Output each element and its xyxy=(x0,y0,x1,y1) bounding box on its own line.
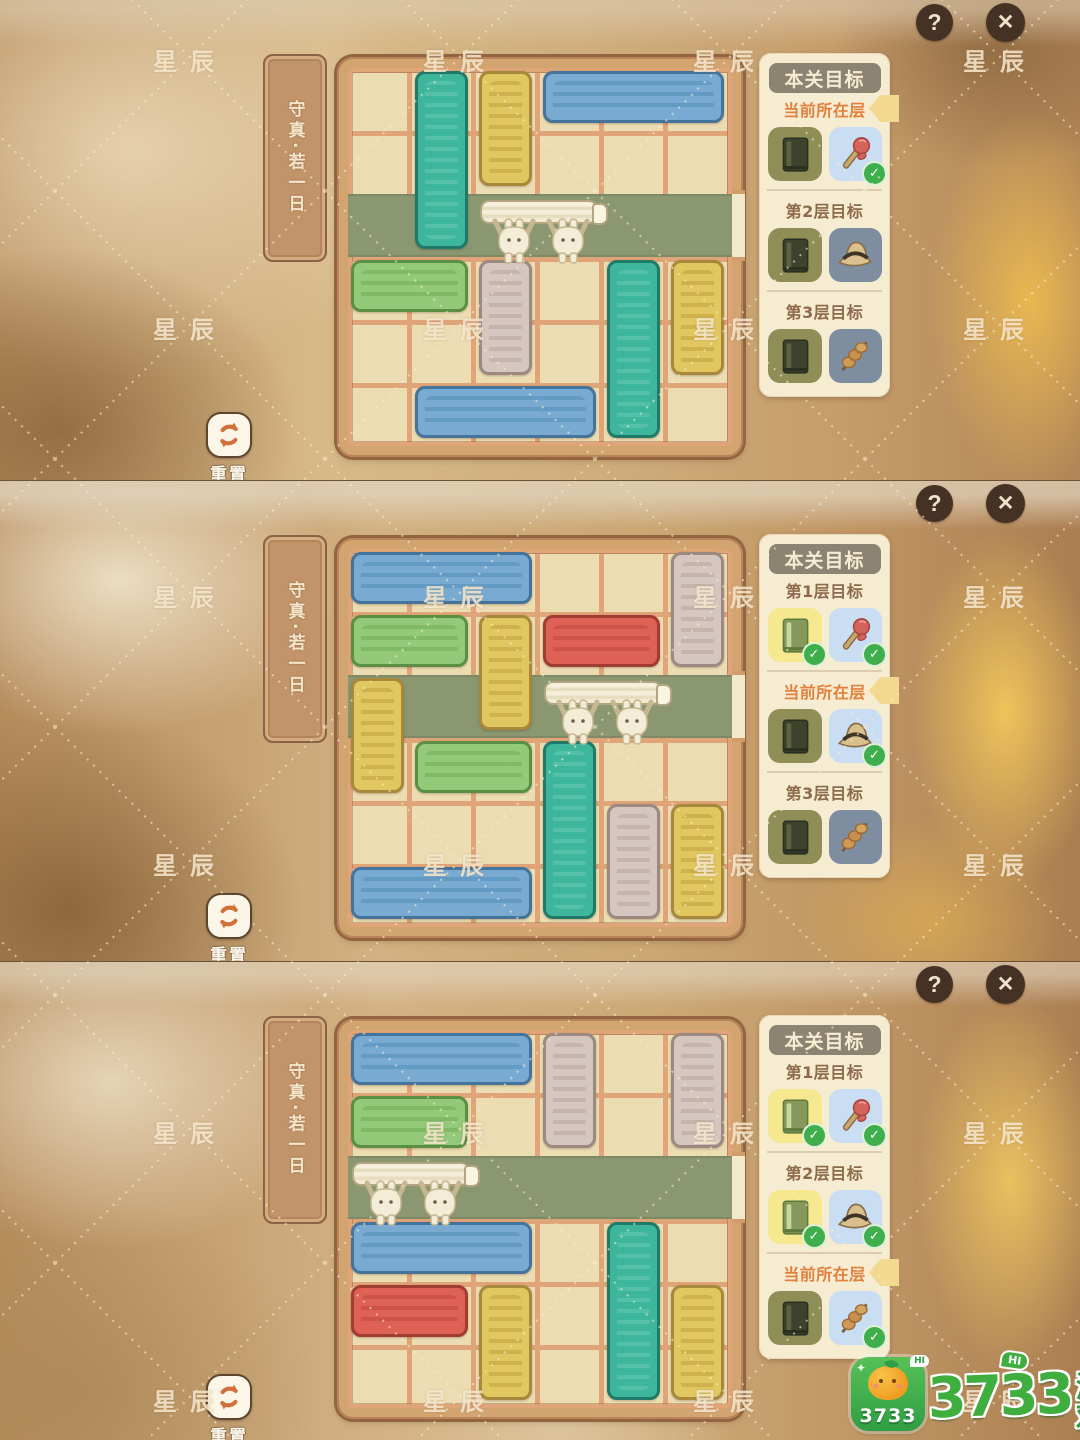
puzzle-block-red[interactable] xyxy=(351,1285,468,1337)
goal-rows: 第1层目标当前所在层第3层目标 xyxy=(767,578,882,864)
bookmark-tab-icon xyxy=(869,1259,899,1286)
goal-panel: 本关目标 第1层目标当前所在层第3层目标 xyxy=(759,534,890,878)
goal-section: 当前所在层 xyxy=(767,1252,882,1345)
book-icon xyxy=(774,715,816,757)
layer-goal-label: 第2层目标 xyxy=(786,1160,864,1184)
puzzle-block-pink[interactable] xyxy=(671,552,724,667)
layer-goal-label: 第3层目标 xyxy=(786,780,864,804)
goal-panel: 本关目标 当前所在层第2层目标第3层目标 xyxy=(759,53,890,397)
wordmark-number: 3733 xyxy=(927,1364,1074,1440)
puzzle-block-yellow[interactable] xyxy=(671,260,724,375)
rabbit-icon xyxy=(608,699,656,745)
board-floor xyxy=(348,549,732,927)
goal-rows: 当前所在层第2层目标第3层目标 xyxy=(767,97,882,383)
refresh-icon xyxy=(214,419,244,451)
goal-panel: 本关目标 第1层目标第2层目标当前所在层 xyxy=(759,1015,890,1359)
goal-section: 第1层目标 xyxy=(767,578,882,662)
close-button[interactable]: ✕ xyxy=(986,965,1025,1004)
goal-panel-header: 本关目标 xyxy=(769,63,881,93)
wordmark-domain: .com xyxy=(1076,1432,1080,1440)
goal-section: 第2层目标 xyxy=(767,1151,882,1244)
3733-app-icon[interactable]: ✦ HI 3733 xyxy=(851,1357,925,1431)
reset-label: 重置 xyxy=(198,941,260,961)
rabbit xyxy=(416,1180,464,1224)
puzzle-block-blue[interactable] xyxy=(351,867,532,919)
leaf-icon xyxy=(884,1358,899,1370)
goal-section: 第3层目标 xyxy=(767,771,882,864)
check-badge-icon xyxy=(802,1123,827,1148)
puzzle-block-teal[interactable] xyxy=(607,260,660,438)
book-icon xyxy=(774,1297,816,1339)
check-badge-icon xyxy=(862,1325,887,1350)
puzzle-block-teal[interactable] xyxy=(415,71,468,249)
layer-goal-label: 第2层目标 xyxy=(786,198,864,222)
puzzle-block-blue[interactable] xyxy=(351,552,532,604)
board-floor xyxy=(348,68,732,446)
check-badge-icon xyxy=(862,642,887,667)
rabbit xyxy=(544,218,592,262)
screenshot-stack: ? ✕ 守真·若一日 本关目标 当前所在层第2层目标第3层目标 重置 ? ✕ 守… xyxy=(0,0,1080,1440)
app-icon-label: 3733 xyxy=(851,1405,925,1427)
reset-button[interactable] xyxy=(206,412,252,458)
help-button[interactable]: ? xyxy=(916,966,953,1003)
rabbit xyxy=(490,218,538,262)
goal-section: 当前所在层 xyxy=(767,670,882,763)
book-goal-tile xyxy=(768,608,822,662)
goal-section: 第2层目标 xyxy=(767,189,882,282)
check-badge-icon xyxy=(862,1123,887,1148)
puzzle-block-teal[interactable] xyxy=(543,741,596,919)
skewer-goal-tile xyxy=(829,329,883,383)
check-badge-icon xyxy=(862,743,887,768)
rabbit-icon xyxy=(416,1180,464,1226)
bookmark-tab-icon xyxy=(869,677,899,704)
reset-button[interactable] xyxy=(206,893,252,939)
layer-goal-label: 第1层目标 xyxy=(786,1059,864,1083)
level-banner: 守真·若一日 xyxy=(263,535,327,743)
rabbit xyxy=(362,1180,410,1224)
help-button[interactable]: ? xyxy=(916,485,953,522)
goal-rows: 第1层目标第2层目标当前所在层 xyxy=(767,1059,882,1345)
rabbit-icon xyxy=(544,218,592,264)
book-goal-tile xyxy=(768,1291,822,1345)
book-icon xyxy=(774,335,816,377)
candy-hammer-goal-tile xyxy=(829,127,883,181)
layer-goal-label: 第1层目标 xyxy=(786,578,864,602)
puzzle-block-blue[interactable] xyxy=(351,1033,532,1085)
exit-gap xyxy=(732,1152,745,1223)
level-title: 守真·若一日 xyxy=(283,581,308,696)
exit-gap xyxy=(732,671,745,742)
puzzle-block-pink[interactable] xyxy=(671,1033,724,1148)
book-icon xyxy=(774,133,816,175)
reset-label: 重置 xyxy=(198,1422,260,1440)
hat-goal-tile xyxy=(829,1190,883,1244)
check-badge-icon xyxy=(862,161,887,186)
reset-control: 重置 xyxy=(198,1374,260,1440)
book-goal-tile xyxy=(768,127,822,181)
rabbit-icon xyxy=(362,1180,410,1226)
book-icon xyxy=(774,234,816,276)
puzzle-block-pink[interactable] xyxy=(607,804,660,919)
current-layer-label: 当前所在层 xyxy=(783,1261,866,1285)
skewer-icon xyxy=(834,816,876,858)
puzzle-block-red[interactable] xyxy=(543,615,660,667)
puzzle-block-yellow[interactable] xyxy=(351,678,404,793)
puzzle-screen-2: ? ✕ 守真·若一日 本关目标 第1层目标当前所在层第3层目标 重置 xyxy=(0,480,1080,961)
wordmark-suffix: 游戏 xyxy=(1076,1372,1080,1432)
hat-icon xyxy=(834,234,876,276)
reset-label: 重置 xyxy=(198,460,260,480)
puzzle-block-green[interactable] xyxy=(351,260,468,312)
bookmark-tab-icon xyxy=(869,95,899,122)
puzzle-board xyxy=(337,57,743,457)
candy-hammer-goal-tile xyxy=(829,608,883,662)
puzzle-block-pink[interactable] xyxy=(543,1033,596,1148)
orange-mascot-icon xyxy=(868,1366,908,1400)
puzzle-block-yellow[interactable] xyxy=(671,804,724,919)
skewer-goal-tile xyxy=(829,810,883,864)
sparkle-icon: ✦ xyxy=(856,1361,866,1375)
goal-section: 第3层目标 xyxy=(767,290,882,383)
candy-hammer-goal-tile xyxy=(829,1089,883,1143)
level-banner: 守真·若一日 xyxy=(263,1016,327,1224)
book-goal-tile xyxy=(768,228,822,282)
puzzle-block-green[interactable] xyxy=(351,615,468,667)
rabbit xyxy=(554,699,602,743)
rabbit xyxy=(608,699,656,743)
book-goal-tile xyxy=(768,329,822,383)
level-title: 守真·若一日 xyxy=(283,1062,308,1177)
puzzle-screen-1: ? ✕ 守真·若一日 本关目标 当前所在层第2层目标第3层目标 重置 xyxy=(0,0,1080,480)
goal-section: 当前所在层 xyxy=(767,97,882,181)
book-goal-tile xyxy=(768,1089,822,1143)
puzzle-board xyxy=(337,1019,743,1419)
rabbits-carrier[interactable] xyxy=(480,194,620,272)
puzzle-block-pink[interactable] xyxy=(479,260,532,375)
goal-panel-header: 本关目标 xyxy=(769,1025,881,1055)
check-badge-icon xyxy=(802,642,827,667)
rabbits-carrier[interactable] xyxy=(544,675,684,753)
rabbit-icon xyxy=(554,699,602,745)
puzzle-block-green[interactable] xyxy=(351,1096,468,1148)
puzzle-block-yellow[interactable] xyxy=(671,1285,724,1400)
book-goal-tile xyxy=(768,709,822,763)
help-button[interactable]: ? xyxy=(916,4,953,41)
puzzle-block-teal[interactable] xyxy=(607,1222,660,1400)
reset-control: 重置 xyxy=(198,412,260,480)
refresh-icon xyxy=(214,1381,244,1413)
board-floor xyxy=(348,1030,732,1408)
puzzle-block-yellow[interactable] xyxy=(479,71,532,186)
goal-panel-header: 本关目标 xyxy=(769,544,881,574)
hat-goal-tile xyxy=(829,709,883,763)
puzzle-block-yellow[interactable] xyxy=(479,615,532,730)
rabbit-icon xyxy=(490,218,538,264)
puzzle-block-green[interactable] xyxy=(415,741,532,793)
puzzle-block-blue[interactable] xyxy=(415,386,596,438)
reset-button[interactable] xyxy=(206,1374,252,1420)
3733-wordmark[interactable]: HI 3733 游戏 .com xyxy=(928,1366,1080,1440)
book-icon xyxy=(774,816,816,858)
hat-goal-tile xyxy=(829,228,883,282)
check-badge-icon xyxy=(802,1224,827,1249)
level-banner: 守真·若一日 xyxy=(263,54,327,262)
current-layer-label: 当前所在层 xyxy=(783,97,866,121)
book-goal-tile xyxy=(768,1190,822,1244)
skewer-goal-tile xyxy=(829,1291,883,1345)
puzzle-block-blue[interactable] xyxy=(543,71,724,123)
puzzle-block-yellow[interactable] xyxy=(479,1285,532,1400)
level-title: 守真·若一日 xyxy=(283,100,308,215)
close-button[interactable]: ✕ xyxy=(986,3,1025,42)
goal-section: 第1层目标 xyxy=(767,1059,882,1143)
rabbits-carrier[interactable] xyxy=(352,1156,492,1234)
puzzle-board xyxy=(337,538,743,938)
check-badge-icon xyxy=(862,1224,887,1249)
refresh-icon xyxy=(214,900,244,932)
book-goal-tile xyxy=(768,810,822,864)
current-layer-label: 当前所在层 xyxy=(783,679,866,703)
hi-bubble: HI xyxy=(910,1355,929,1367)
skewer-icon xyxy=(834,335,876,377)
reset-control: 重置 xyxy=(198,893,260,961)
exit-gap xyxy=(732,190,745,261)
close-button[interactable]: ✕ xyxy=(986,484,1025,523)
layer-goal-label: 第3层目标 xyxy=(786,299,864,323)
